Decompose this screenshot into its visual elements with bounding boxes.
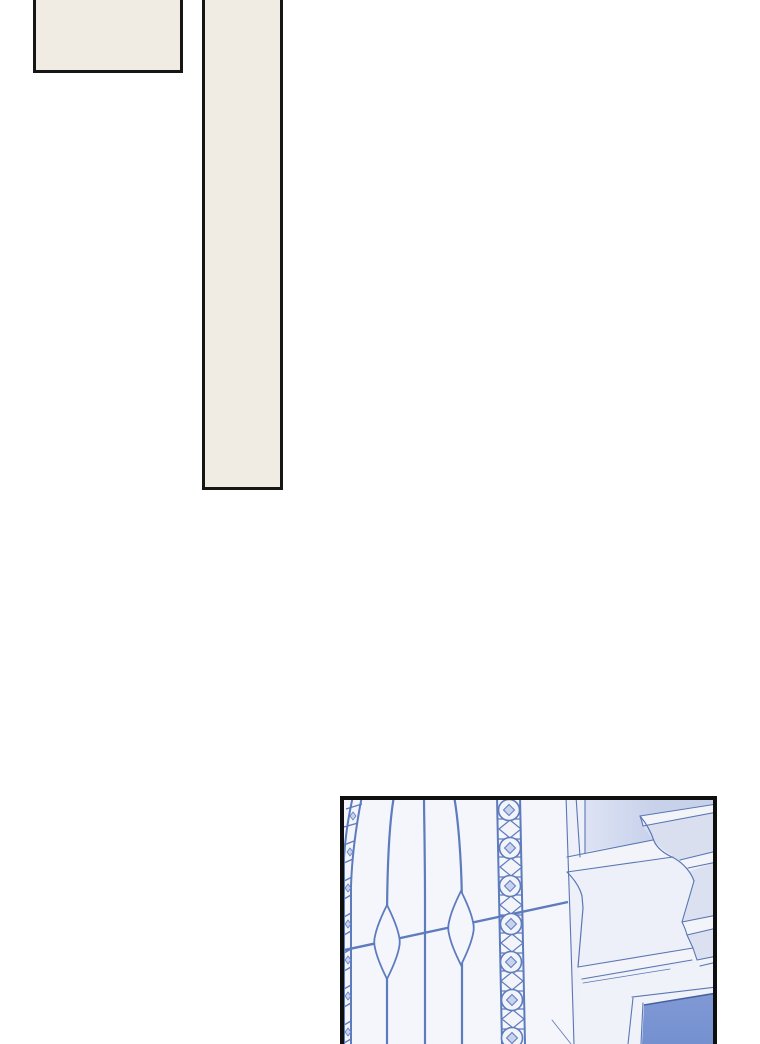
panel-small-rectangle (33, 0, 183, 73)
comic-page (0, 0, 760, 1044)
stone-molding (552, 800, 713, 1044)
big-fascia (567, 856, 694, 967)
panel-window-illustration (340, 796, 717, 1044)
panel-tall-bar (202, 0, 283, 490)
window-artwork (344, 800, 713, 1044)
